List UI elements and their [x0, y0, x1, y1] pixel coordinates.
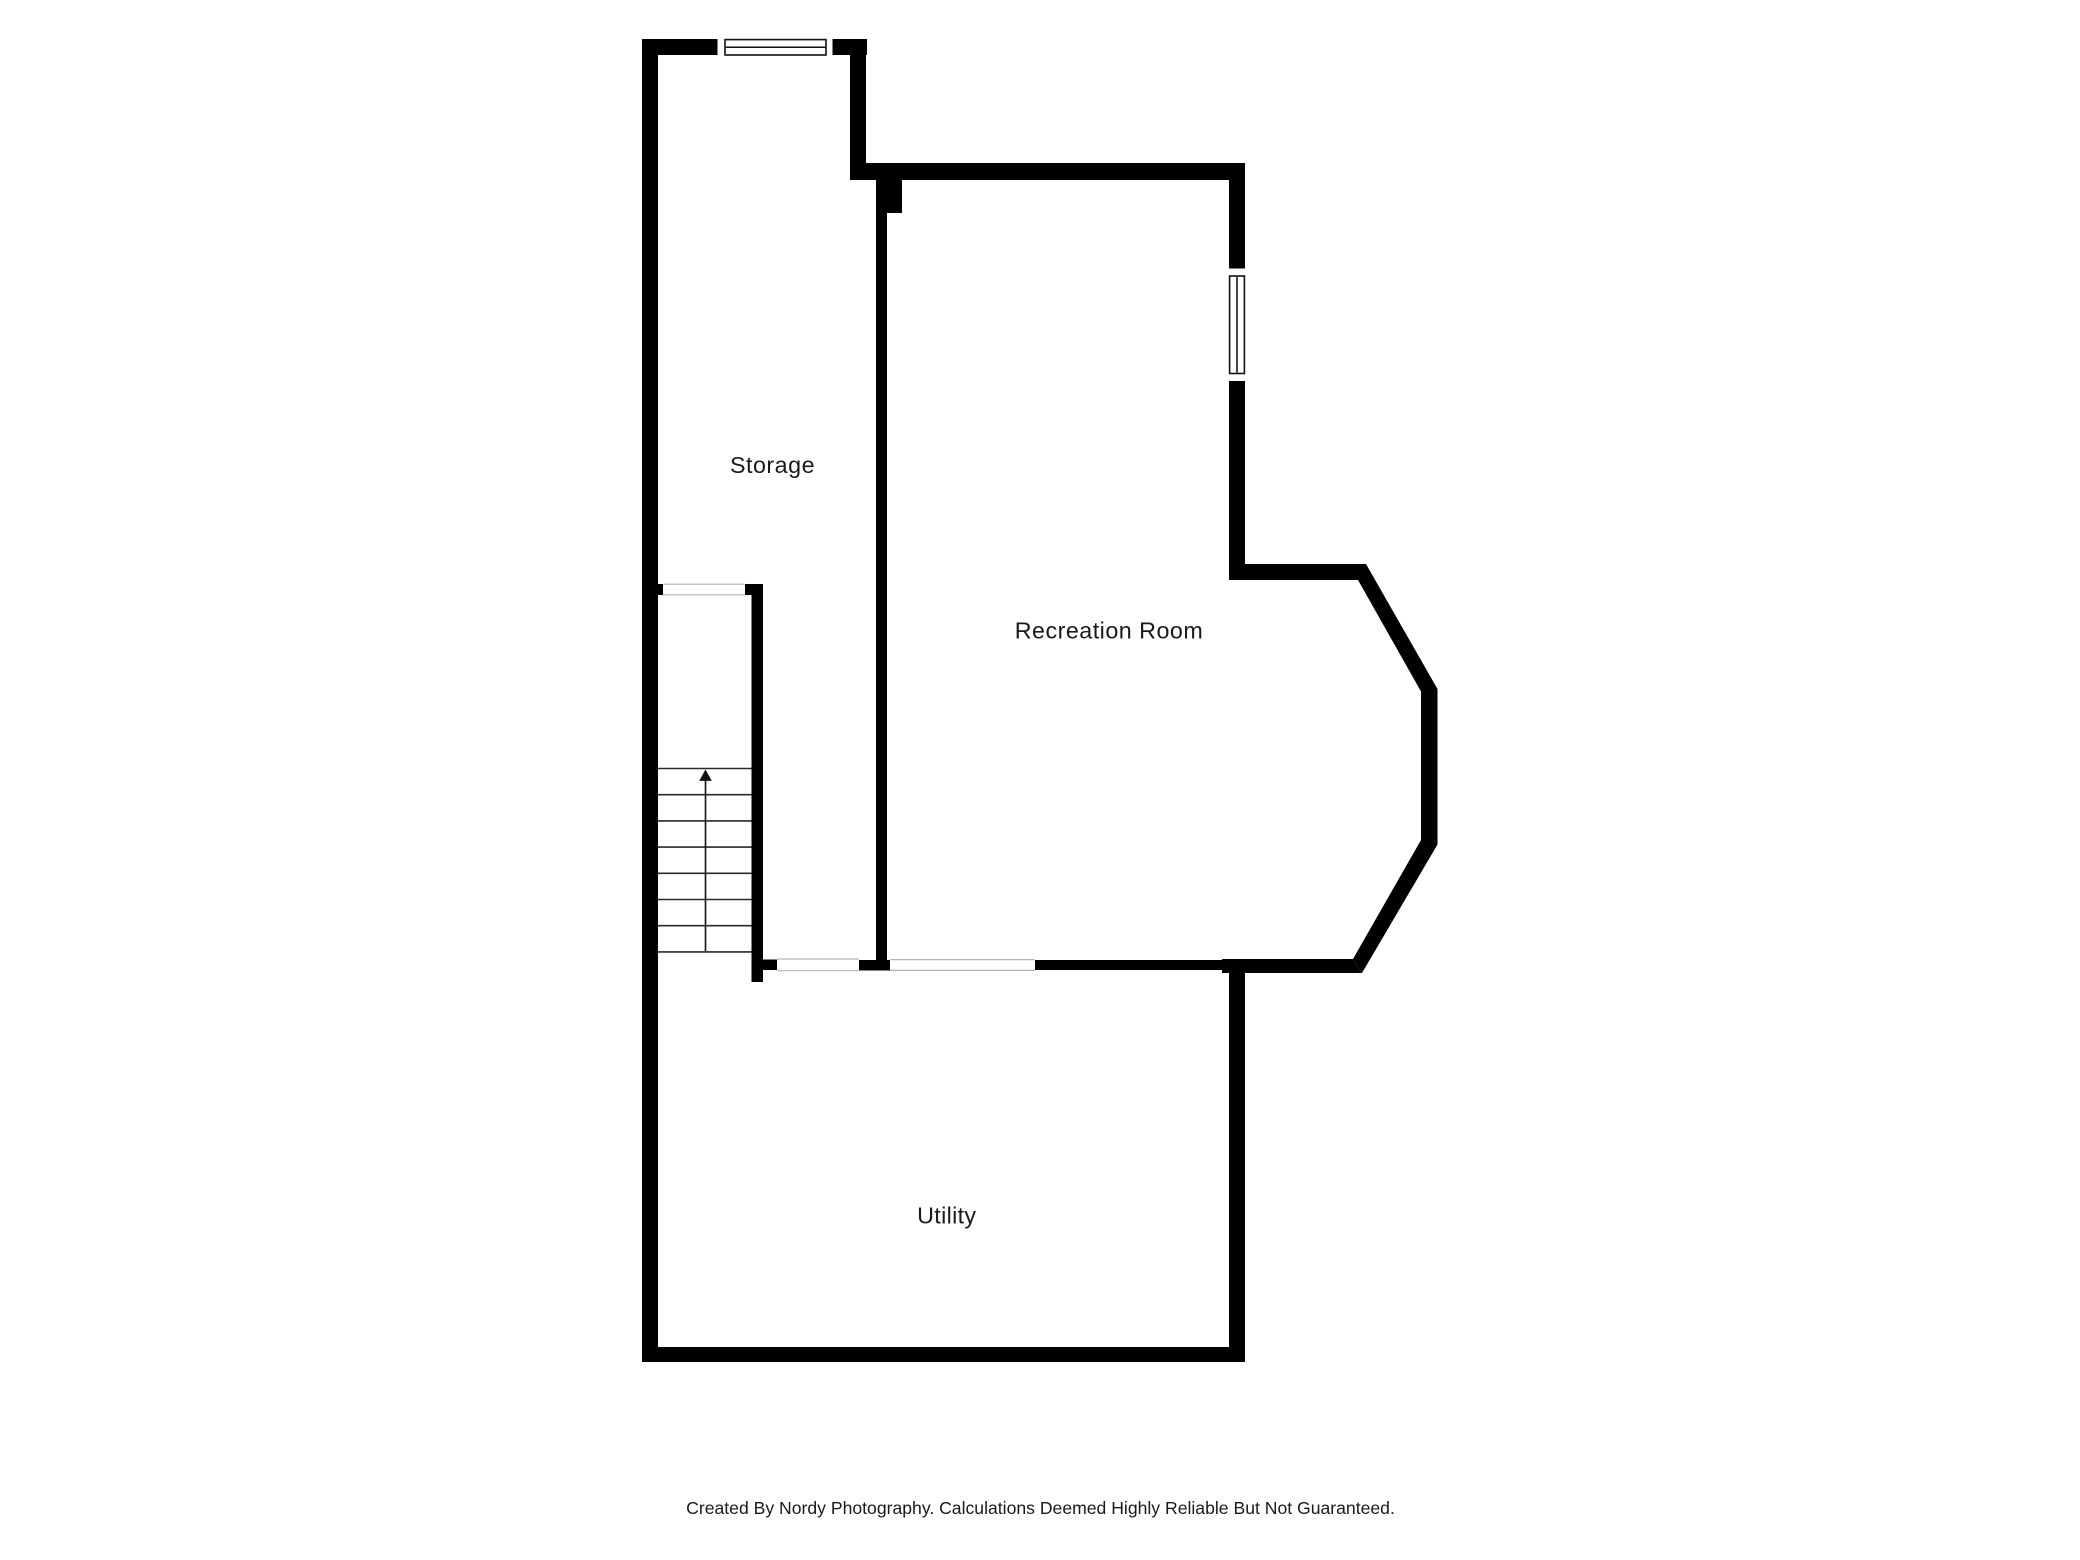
svg-text:Utility: Utility — [917, 1203, 976, 1229]
svg-text:Storage: Storage — [730, 452, 815, 478]
svg-text:Recreation Room: Recreation Room — [1015, 617, 1203, 643]
svg-text:Created By Nordy Photography.: Created By Nordy Photography. Calculatio… — [686, 1498, 1395, 1518]
